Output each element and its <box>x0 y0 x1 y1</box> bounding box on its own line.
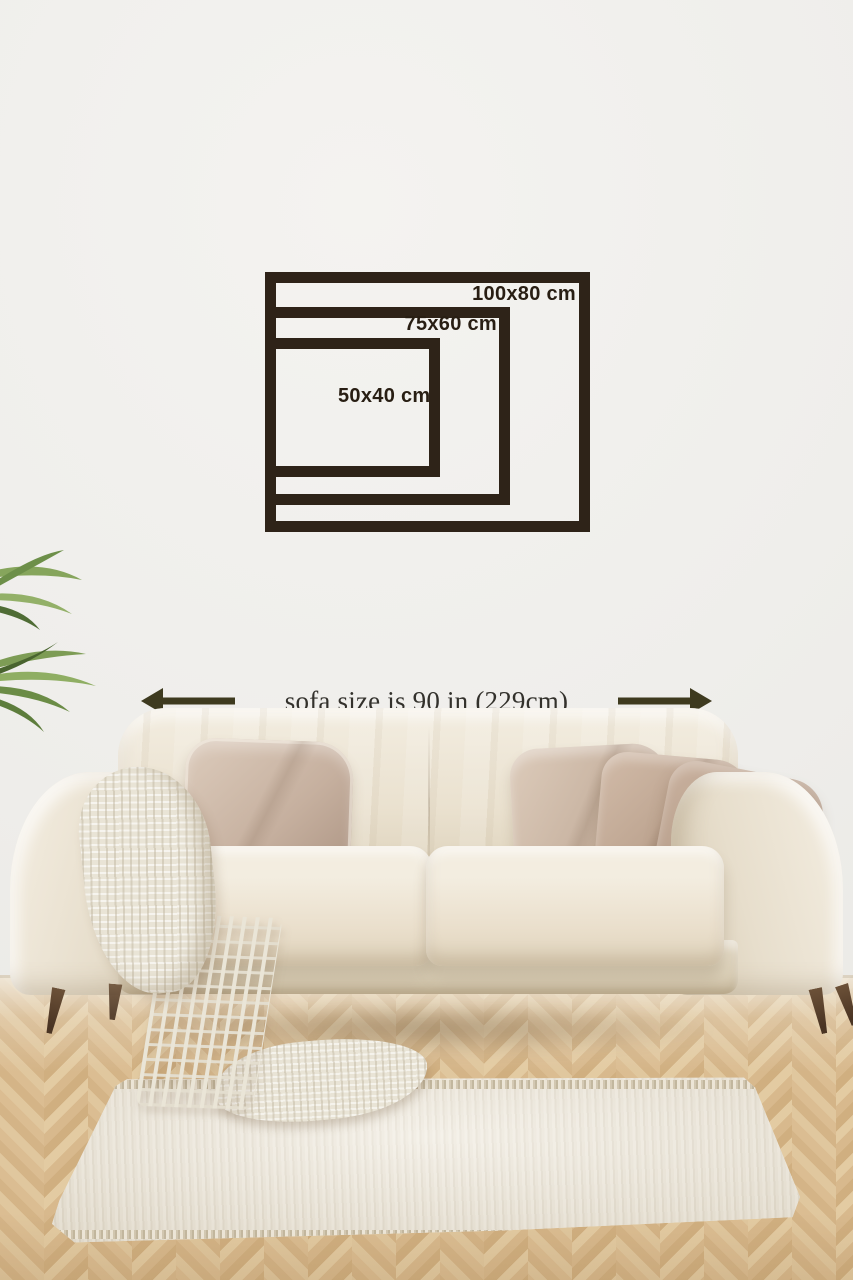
living-room-size-guide-mockup: 100x80 cm 75x60 cm 50x40 cm sofa size is… <box>0 0 853 1280</box>
sofa <box>0 0 853 1280</box>
sofa-leg-front-right <box>805 986 834 1035</box>
sofa-seat-cushion-right <box>426 846 724 966</box>
